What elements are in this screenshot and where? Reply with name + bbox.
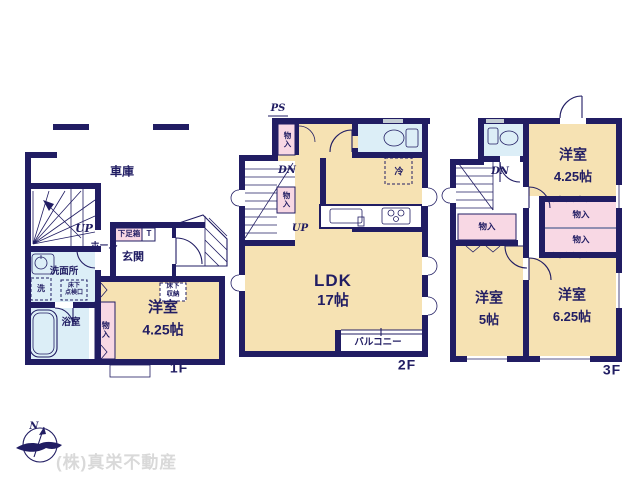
floorplan-3f-drawing <box>438 88 638 398</box>
ldk-size-label: 17帖 <box>317 293 349 309</box>
closet-label-3f-right2: 物入 <box>572 236 589 245</box>
washroom-label: 洗面所 <box>50 267 79 277</box>
hall-label: ホール <box>90 241 117 250</box>
closet-label-3f-right1: 物入 <box>572 211 589 220</box>
fridge-label: 冷 <box>394 167 403 176</box>
shoebox-label: 下足箱 <box>118 230 141 238</box>
washer-label: 洗 <box>37 285 45 293</box>
ldk-label: LDK <box>314 272 352 290</box>
floorplan-image: N 車庫 UP ホール 下足箱 T 玄関 洗面所 洗 床下 点検口 浴室 物入 … <box>0 0 640 480</box>
underfloor-storage-label-line2: 収納 <box>167 292 180 299</box>
floorplan-1f-drawing <box>25 100 235 385</box>
bath-label: 浴室 <box>61 318 80 328</box>
closet-label-2f-top: 物入 <box>283 132 291 149</box>
stairs-dn-label-3f: DN <box>491 167 509 178</box>
underfloor-hatch-label-line2: 点検口 <box>65 290 83 296</box>
room-c-label-3f: 洋室 <box>558 288 586 303</box>
room-size-label-1f: 4.25帖 <box>142 323 183 338</box>
room-b-size-label-3f: 5帖 <box>479 313 499 327</box>
closet-label-2f-mid: 物入 <box>282 192 290 209</box>
underfloor-hatch-label-line1: 床下 <box>68 283 80 289</box>
room-a-label-3f: 洋室 <box>559 148 587 163</box>
pipe-space-label: PS <box>271 104 286 115</box>
stairs-up-label-2f: UP <box>292 224 308 235</box>
garage-label: 車庫 <box>110 166 134 179</box>
underfloor-storage-label-line1: 床下 <box>167 284 180 291</box>
room-a-size-label-3f: 4.25帖 <box>554 170 592 184</box>
room-c-size-label-3f: 6.25帖 <box>553 310 591 324</box>
wc-label-1f: T <box>147 230 152 238</box>
balcony-label: バルコニー <box>354 338 401 348</box>
closet-label-1f: 物入 <box>101 321 109 339</box>
company-watermark: (株)真栄不動産 <box>56 448 177 473</box>
room-b-label-3f: 洋室 <box>475 291 503 306</box>
compass-north-label: N <box>29 422 38 433</box>
stairs-dn-label-2f: DN <box>278 166 296 177</box>
floor-label-1f: 1F <box>170 361 188 376</box>
room-label-1f: 洋室 <box>148 300 178 316</box>
entrance-label: 玄関 <box>122 252 144 264</box>
floor-label-3f: 3F <box>603 363 621 378</box>
closet-label-3f-left: 物入 <box>478 223 495 232</box>
floor-label-2f: 2F <box>398 358 416 373</box>
stairs-up-label-1f: UP <box>75 223 93 235</box>
floorplan-2f-drawing <box>220 88 445 388</box>
